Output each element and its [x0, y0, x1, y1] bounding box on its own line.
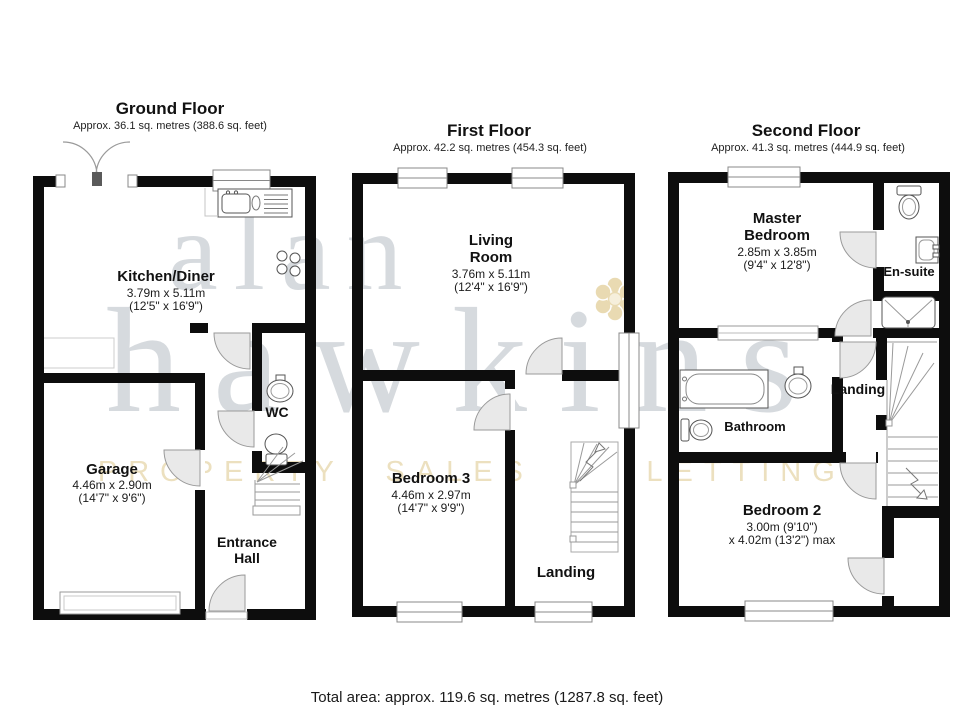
first-floor-stairs-icon	[570, 442, 618, 552]
garage-dims: 4.46m x 2.90m	[72, 479, 151, 491]
second-floor-stairs-icon	[886, 342, 938, 506]
living-room-dims-ft: (12'4" x 16'9")	[454, 281, 528, 293]
kitchen-diner-label: Kitchen/Diner	[117, 269, 215, 284]
worktop-line	[205, 188, 218, 216]
kitchen-door-icon	[214, 333, 250, 369]
first-landing-label: Landing	[537, 565, 595, 580]
bedroom2-second-door-icon	[848, 558, 884, 594]
wc-sink-icon	[267, 375, 293, 402]
bedroom2-dims: 3.00m (9'10")	[746, 521, 817, 533]
master-bedroom-door-icon	[835, 300, 871, 336]
garage-dims-ft: (14'7" x 9'6")	[78, 492, 145, 504]
wc-toilet-icon	[265, 434, 287, 465]
ensuite-sink-icon	[916, 237, 939, 263]
living-room-door-icon	[526, 338, 562, 374]
ensuite-door-icon	[840, 232, 876, 268]
ground-floor-subtitle: Approx. 36.1 sq. metres (388.6 sq. feet)	[73, 121, 267, 132]
window-icon	[512, 168, 563, 188]
ensuite-toilet-icon	[897, 186, 921, 219]
master-bedroom-label-2: Bedroom	[744, 228, 810, 243]
master-bedroom-label-1: Master	[753, 211, 801, 226]
bedroom2-door-icon	[840, 463, 876, 499]
entrance-hall-label-2: Hall	[234, 551, 260, 565]
kitchen-window-icon	[213, 170, 270, 191]
second-floor-subtitle: Approx. 41.3 sq. metres (444.9 sq. feet)	[711, 143, 905, 154]
master-bedroom-dims-ft: (9'4" x 12'8")	[743, 259, 810, 271]
bath-icon	[680, 370, 768, 408]
ground-floor-openings	[60, 175, 262, 621]
living-room-label-2: Room	[470, 250, 513, 265]
entrance-hall-label-1: Entrance	[217, 535, 277, 549]
bedroom2-label: Bedroom 2	[743, 503, 821, 518]
first-floor-title: First Floor	[447, 122, 531, 139]
bathroom-door-icon	[840, 342, 876, 378]
kitchen-step-line	[44, 338, 114, 368]
garage-up-and-over-door-icon	[60, 592, 180, 614]
wardrobe-icon	[718, 326, 818, 340]
window-icon	[535, 602, 592, 622]
bedroom2-dims-ft: x 4.02m (13'2") max	[729, 534, 836, 546]
shower-icon	[882, 297, 935, 328]
kitchen-diner-dims-ft: (12'5" x 16'9")	[129, 300, 203, 312]
garage-label: Garage	[86, 462, 138, 477]
bedroom3-dims-ft: (14'7" x 9'9")	[397, 502, 464, 514]
front-door-icon	[209, 575, 245, 611]
window-icon	[728, 167, 800, 187]
hob-icon	[277, 251, 300, 276]
window-icon	[745, 601, 833, 621]
living-room-label-1: Living	[469, 233, 513, 248]
bedroom3-dims: 4.46m x 2.97m	[391, 489, 470, 501]
bedroom3-door-icon	[474, 394, 510, 430]
bathroom-toilet-icon	[681, 419, 712, 441]
ensuite-label: En-suite	[883, 265, 934, 278]
living-room-dims: 3.76m x 5.11m	[452, 268, 530, 280]
master-bedroom-dims: 2.85m x 3.85m	[737, 246, 816, 258]
front-threshold	[206, 612, 247, 619]
second-landing-label: Landing	[831, 382, 885, 396]
first-floor-windows	[397, 168, 639, 622]
window-icon	[398, 168, 447, 188]
wc-door-icon	[218, 411, 254, 447]
kitchen-diner-dims: 3.79m x 5.11m	[127, 287, 205, 299]
window-icon	[397, 602, 462, 622]
total-area-text: Total area: approx. 119.6 sq. metres (12…	[311, 690, 663, 705]
first-floor-subtitle: Approx. 42.2 sq. metres (454.3 sq. feet)	[393, 143, 587, 154]
bathroom-label: Bathroom	[724, 420, 785, 433]
window-icon	[619, 333, 639, 428]
bathroom-sink-icon	[785, 367, 811, 398]
floorplan-page: alan hawkins PROPERTY SALES & LETTINGS	[0, 0, 980, 712]
wc-label: WC	[265, 405, 288, 419]
kitchen-sink-icon	[218, 189, 292, 217]
ground-floor-title: Ground Floor	[116, 100, 225, 117]
garage-door-icon	[164, 450, 200, 486]
first-floor-doors	[474, 338, 562, 430]
second-floor-title: Second Floor	[752, 122, 861, 139]
bedroom3-label: Bedroom 3	[392, 471, 470, 486]
